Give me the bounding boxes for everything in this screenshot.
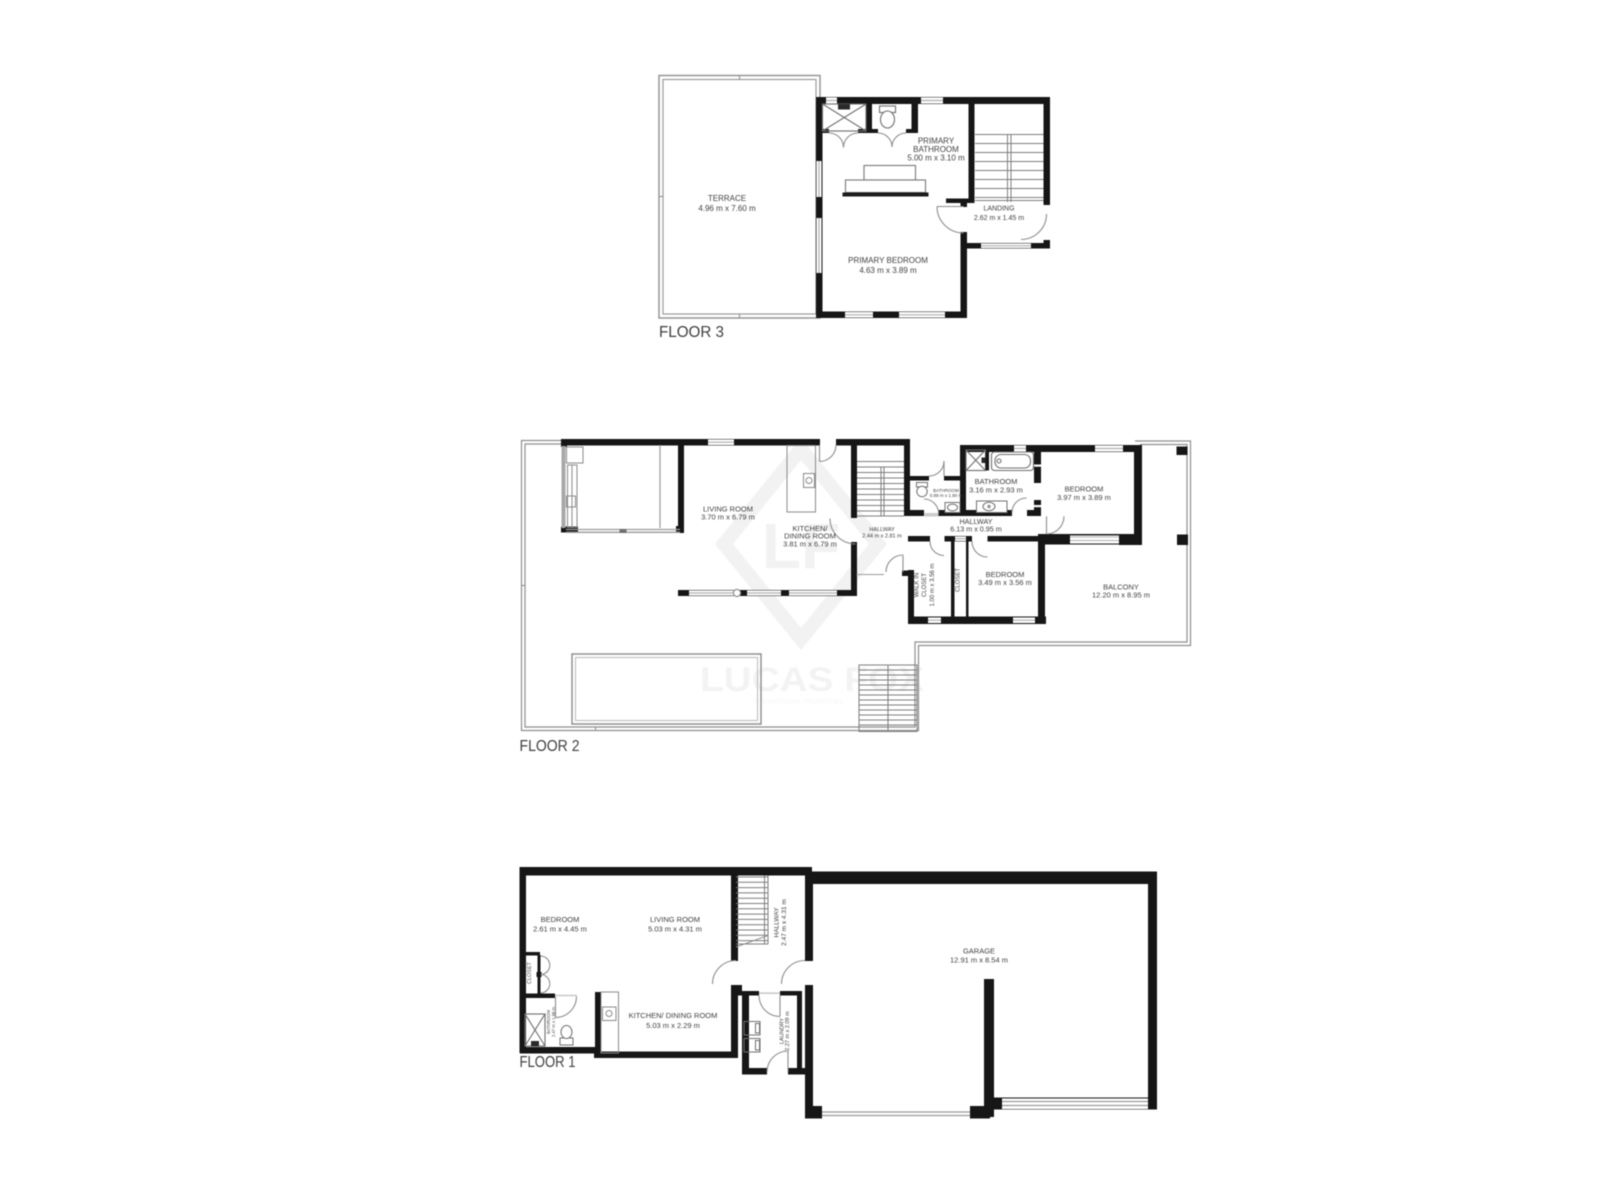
svg-text:PRIMARY BEDROOM: PRIMARY BEDROOM — [848, 256, 928, 265]
svg-text:5.03 m x 4.31 m: 5.03 m x 4.31 m — [648, 925, 702, 934]
svg-text:12.91 m x 8.54 m: 12.91 m x 8.54 m — [950, 956, 1008, 965]
svg-text:HALLWAY: HALLWAY — [869, 527, 895, 533]
svg-text:HALLWAY: HALLWAY — [774, 907, 781, 938]
svg-text:KITCHEN/ DINING ROOM: KITCHEN/ DINING ROOM — [629, 1011, 718, 1020]
svg-text:CLOSET: CLOSET — [527, 961, 533, 984]
svg-text:2.62 m x 1.45 m: 2.62 m x 1.45 m — [974, 215, 1024, 222]
svg-text:WALK IN: WALK IN — [915, 573, 921, 597]
svg-text:3.70 m x 6.79 m: 3.70 m x 6.79 m — [701, 513, 755, 522]
svg-text:2.61 m x 4.45 m: 2.61 m x 4.45 m — [533, 925, 587, 934]
svg-text:4.63 m x 3.89 m: 4.63 m x 3.89 m — [859, 266, 917, 275]
svg-text:BEDROOM: BEDROOM — [541, 915, 580, 924]
svg-text:3.49 m x 3.56 m: 3.49 m x 3.56 m — [978, 578, 1032, 587]
svg-text:INTERNATIONAL PROPERTIES: INTERNATIONAL PROPERTIES — [753, 699, 844, 706]
svg-text:GARAGE: GARAGE — [963, 947, 995, 956]
svg-text:FLOOR 3: FLOOR 3 — [659, 324, 724, 341]
svg-text:1.00 m x 3.56 m: 1.00 m x 3.56 m — [930, 563, 936, 606]
svg-text:2.27 m x 2.09 m: 2.27 m x 2.09 m — [785, 1011, 791, 1051]
svg-text:CLOSET: CLOSET — [922, 573, 928, 597]
svg-text:12.20 m x 8.95 m: 12.20 m x 8.95 m — [1092, 591, 1150, 600]
svg-text:5.00 m x 3.10 m: 5.00 m x 3.10 m — [907, 154, 965, 163]
svg-text:LIVING ROOM: LIVING ROOM — [650, 915, 700, 924]
svg-text:LANDING: LANDING — [983, 206, 1014, 213]
svg-text:3.97 m x 3.89 m: 3.97 m x 3.89 m — [1057, 493, 1111, 502]
svg-text:FLOOR 1: FLOOR 1 — [520, 1054, 576, 1071]
svg-text:2.47 m x 4.31 m: 2.47 m x 4.31 m — [781, 899, 788, 946]
svg-text:TERRACE: TERRACE — [708, 194, 746, 203]
svg-text:2.47 m x 1.98 m: 2.47 m x 1.98 m — [551, 1006, 556, 1037]
svg-text:0.89 m x 1.90 m: 0.89 m x 1.90 m — [930, 493, 963, 498]
svg-text:FLOOR 2: FLOOR 2 — [520, 738, 580, 755]
svg-text:5.03 m x 2.29 m: 5.03 m x 2.29 m — [646, 1021, 700, 1030]
svg-text:CLOSET: CLOSET — [956, 568, 962, 592]
svg-text:3.16 m x 2.93 m: 3.16 m x 2.93 m — [969, 486, 1023, 495]
svg-text:2.44 m x 2.81 m: 2.44 m x 2.81 m — [862, 534, 902, 540]
svg-text:3.81 m x 6.79 m: 3.81 m x 6.79 m — [783, 539, 837, 548]
svg-text:4.96 m x 7.60 m: 4.96 m x 7.60 m — [698, 204, 756, 213]
svg-text:6.13 m x 0.95 m: 6.13 m x 0.95 m — [950, 525, 1002, 534]
